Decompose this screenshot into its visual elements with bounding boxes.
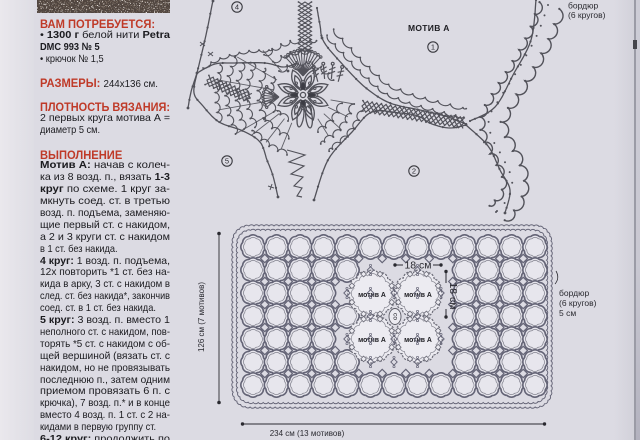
svg-text:18 см: 18 см (404, 260, 431, 272)
svg-text:бордюр: бордюр (559, 288, 589, 298)
svg-text:(6 кругов): (6 кругов) (559, 298, 597, 308)
svg-text:5: 5 (225, 157, 229, 166)
svg-text:5 см: 5 см (559, 308, 576, 318)
svg-text:2: 2 (412, 167, 416, 176)
svg-text:234 см (13 мотивов): 234 см (13 мотивов) (270, 429, 345, 438)
svg-text:со: со (392, 313, 399, 320)
svg-text:1: 1 (431, 43, 435, 52)
svg-text:бордюр: бордюр (568, 1, 598, 11)
svg-text:мотив А: мотив А (358, 292, 386, 299)
svg-text:4: 4 (235, 3, 239, 12)
svg-text:МОТИВ А: МОТИВ А (408, 23, 450, 33)
svg-text:18 см: 18 см (447, 282, 459, 309)
svg-text:126 см (7 мотивов): 126 см (7 мотивов) (197, 282, 206, 352)
svg-text:(6 кругов): (6 кругов) (568, 10, 606, 20)
